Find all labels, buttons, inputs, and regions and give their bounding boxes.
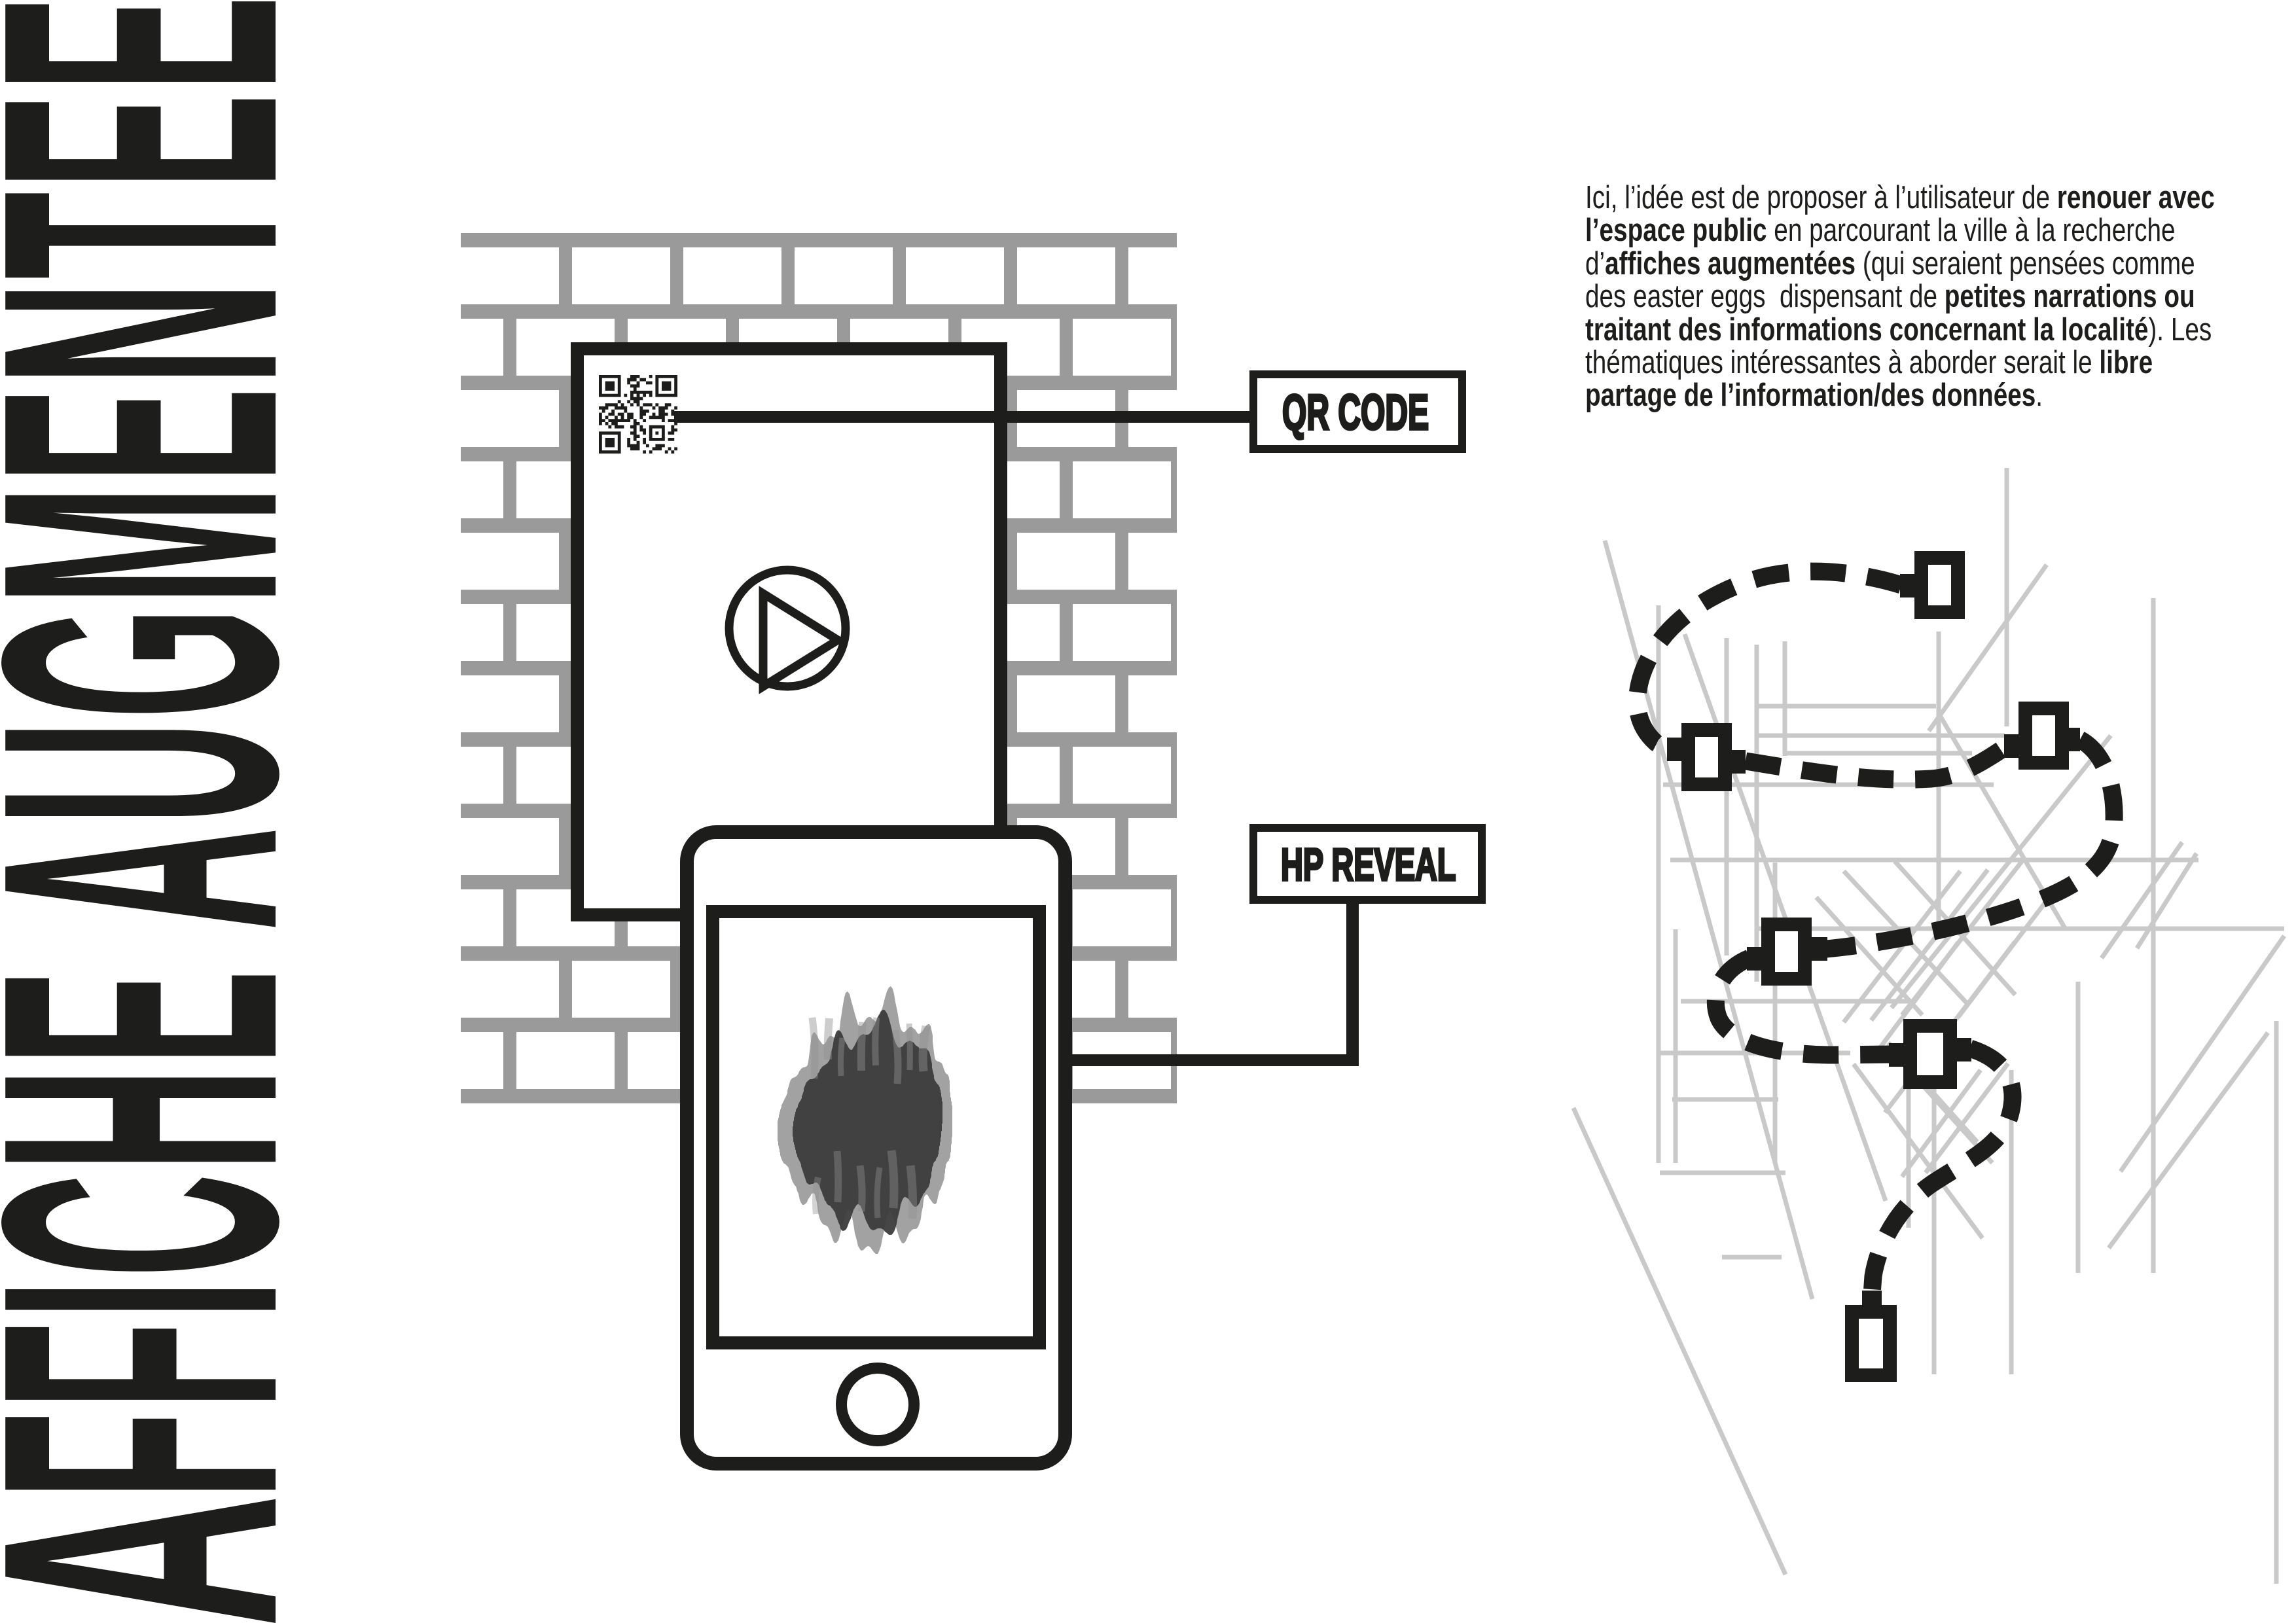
svg-text:HP REVEAL: HP REVEAL — [1281, 839, 1456, 891]
svg-text:A: A — [0, 1494, 359, 1623]
svg-text:FFICHE AUGMENTEE: FFICHE AUGMENTEE — [0, 0, 359, 1499]
svg-text:QR CODE: QR CODE — [1282, 385, 1429, 440]
